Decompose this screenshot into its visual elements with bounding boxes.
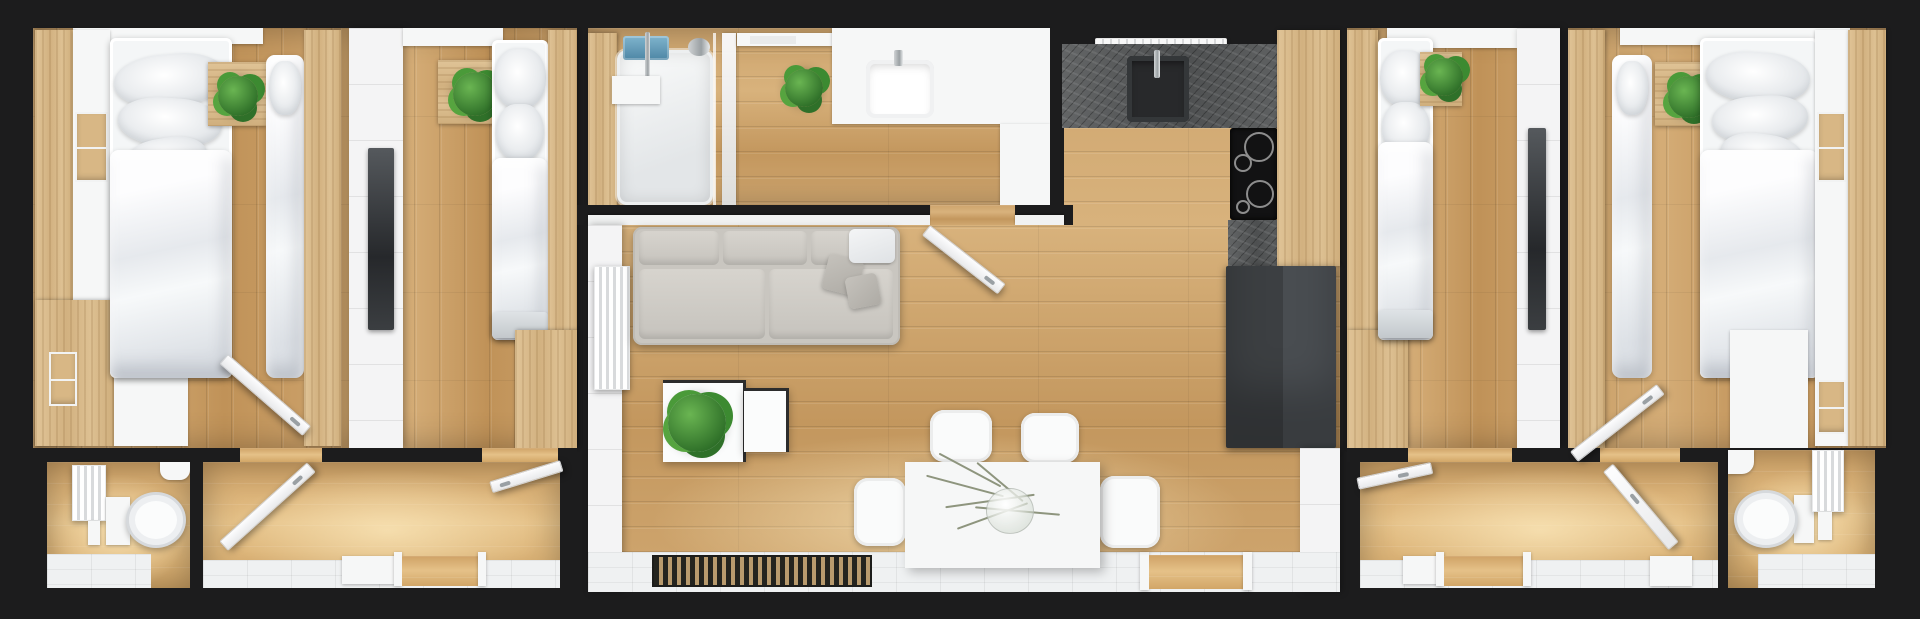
- shelf-cubby: [49, 352, 77, 406]
- radiator-bracket: [88, 521, 100, 545]
- door-handle: [1398, 472, 1410, 478]
- sofa-back-cushion: [639, 231, 719, 265]
- tall-oak-column: [1277, 30, 1340, 266]
- door-jamb: [1523, 552, 1531, 586]
- double-bed: [1700, 38, 1818, 378]
- door-handle: [1629, 493, 1640, 505]
- doormat: [652, 555, 872, 587]
- door-jamb: [1436, 552, 1444, 586]
- door-jamb: [394, 552, 402, 586]
- doorway: [240, 448, 322, 462]
- bedroom-left-outer: [33, 28, 341, 448]
- dining-chair: [1100, 476, 1160, 548]
- entry-opening: [1149, 555, 1243, 589]
- radiator: [72, 465, 106, 521]
- door-jamb: [1140, 552, 1149, 590]
- bathroom-left: [47, 462, 190, 588]
- plant: [785, 69, 823, 107]
- pillow: [269, 61, 301, 115]
- threshold-frame: [342, 556, 395, 584]
- pillow: [494, 48, 546, 108]
- door-handle: [1642, 395, 1654, 406]
- bedroom-right-outer: [1568, 28, 1886, 448]
- bedroom-right-inner: [1347, 28, 1560, 448]
- plant: [1425, 58, 1463, 96]
- shower-head: [688, 38, 710, 56]
- corner-basin: [1728, 450, 1754, 474]
- dresser: [1730, 330, 1808, 448]
- wardrobe-lower: [1347, 330, 1408, 448]
- shower-shelf: [612, 76, 660, 104]
- mirror-tv-panel: [1528, 128, 1546, 330]
- vanity-counter: [832, 28, 1050, 124]
- room-divider-wardrobe: [304, 30, 341, 446]
- pillow: [496, 104, 544, 160]
- wall: [190, 462, 203, 588]
- vanity-basin: [866, 60, 934, 118]
- threshold-frame: [1650, 556, 1692, 586]
- tall-cabinet: [1000, 124, 1050, 205]
- room-divider-wardrobe: [1568, 30, 1605, 448]
- wardrobe-lower: [515, 330, 577, 448]
- bed-foot-rail: [1378, 310, 1433, 338]
- single-bed: [492, 40, 548, 340]
- ceiling-vent: [750, 36, 796, 44]
- wardrobe: [1848, 30, 1886, 446]
- toilet: [126, 492, 186, 548]
- duvet: [110, 150, 232, 378]
- burner: [1246, 180, 1274, 208]
- door-handle: [499, 481, 511, 488]
- entry-opening: [1444, 556, 1523, 586]
- throw-pillow: [844, 272, 882, 310]
- doorway: [482, 448, 558, 462]
- plant: [668, 394, 726, 452]
- sofa-seat-cushion: [639, 269, 765, 339]
- door-handle: [289, 416, 301, 427]
- door-jamb: [1243, 552, 1252, 590]
- doorway: [930, 205, 1015, 225]
- plant: [218, 76, 258, 116]
- entry-opening: [402, 556, 478, 586]
- burner: [1234, 154, 1252, 172]
- sofa: [633, 227, 900, 345]
- doorway: [1408, 448, 1512, 462]
- stone-counter-lower: [1228, 220, 1280, 266]
- dining-chair: [854, 478, 906, 546]
- coffee-table-small: [744, 388, 789, 452]
- burner: [1236, 200, 1250, 214]
- bedroom-left-inner: [341, 28, 577, 448]
- glass-door: [722, 33, 736, 205]
- fridge-unit: [1226, 266, 1336, 448]
- corner-basin: [160, 462, 190, 480]
- plant: [453, 72, 497, 116]
- white-throw-blanket: [849, 229, 895, 263]
- bathroom-center: [588, 28, 1050, 207]
- pillow: [1616, 61, 1648, 115]
- shelf-cubby: [1817, 112, 1846, 182]
- radiator: [594, 266, 630, 390]
- single-bed: [1612, 55, 1652, 378]
- glass-screen-edge: [713, 33, 716, 205]
- single-bed: [266, 55, 304, 378]
- cooktop: [1230, 128, 1278, 220]
- radiator-bracket: [1818, 512, 1832, 540]
- toilet: [1734, 490, 1798, 548]
- basin-faucet: [894, 50, 903, 66]
- shelf-cubby: [1817, 380, 1846, 434]
- wall-top-strip: [403, 28, 503, 46]
- door-handle: [984, 275, 996, 286]
- wood-wall-strip: [588, 33, 617, 205]
- glass-vase: [986, 488, 1034, 534]
- wall-ledge: [588, 215, 930, 225]
- mirror-tv-panel: [368, 148, 394, 330]
- bathroom-right: [1728, 450, 1875, 588]
- kitchen-faucet: [1154, 50, 1160, 78]
- wall-ledge: [1015, 215, 1064, 225]
- door-handle: [292, 475, 304, 486]
- door-jamb: [478, 552, 486, 586]
- radiator: [1812, 450, 1844, 512]
- floorplan-render: [0, 0, 1920, 619]
- wall: [1718, 462, 1728, 588]
- shower-tray: [617, 50, 713, 205]
- threshold-frame: [1403, 556, 1440, 584]
- tile-floor: [1758, 554, 1875, 588]
- shelf-cubby: [75, 112, 108, 182]
- sofa-back-cushion: [723, 231, 807, 265]
- tile-floor: [47, 554, 151, 588]
- doorway: [1600, 448, 1680, 462]
